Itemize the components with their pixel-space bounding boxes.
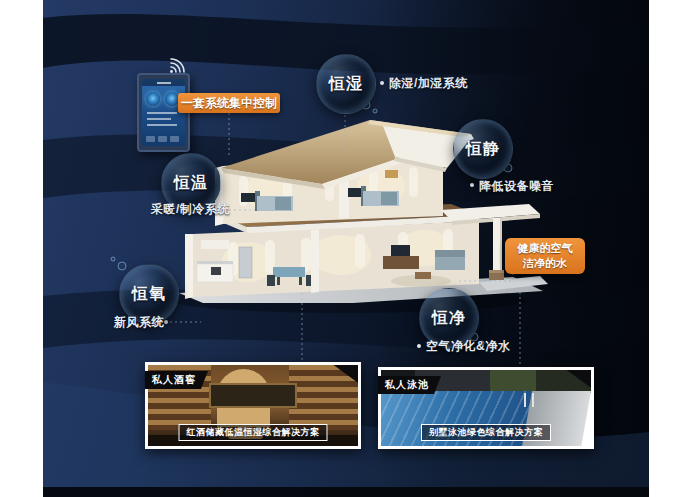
wine-caption: 红酒储藏低温恒湿综合解决方案: [179, 424, 328, 441]
poster-background: 一套系统集中控制 健康的空气 洁净的水 恒湿 恒静 恒温 恒氧 恒净 除湿/加湿…: [43, 0, 649, 497]
control-panel-header: [142, 79, 185, 86]
pool-tag: 私人泳池: [378, 376, 441, 394]
control-knob-icon: [165, 92, 179, 106]
poster-stage: 一套系统集中控制 健康的空气 洁净的水 恒湿 恒静 恒温 恒氧 恒净 除湿/加湿…: [0, 0, 700, 497]
central-control-callout: 一套系统集中控制: [178, 93, 280, 113]
note-noise-reduction: 降低设备噪音: [479, 178, 554, 195]
pool-ladder: [524, 393, 534, 407]
note-heating-cooling-system: 采暖/制冷系统: [151, 201, 230, 218]
note-air-water-purification: 空气净化&净水: [426, 338, 510, 355]
wine-picture-frame: [209, 383, 297, 408]
control-panel-buttons: [146, 136, 179, 142]
note-fresh-air-system: 新风系统: [114, 314, 164, 331]
wifi-icon: [167, 56, 187, 76]
bubble-constant-humidity: 恒湿: [316, 54, 376, 114]
control-knob-icon: [146, 92, 160, 106]
healthy-air-line: 健康的空气: [507, 241, 583, 256]
bubble-label: 恒净: [432, 308, 466, 329]
pool-caption: 别墅泳池绿色综合解决方案: [421, 424, 551, 441]
bubble-label: 恒氧: [132, 284, 166, 305]
wine-tag: 私人酒窖: [145, 371, 208, 389]
bubble-label: 恒湿: [329, 74, 363, 95]
note-dehumidify-system: 除湿/加湿系统: [389, 75, 468, 92]
bubble-label: 恒温: [174, 173, 208, 194]
photo-wine-cellar: 红酒储藏低温恒湿综合解决方案 私人酒窖: [145, 362, 361, 449]
clean-water-line: 洁净的水: [507, 256, 583, 271]
bubble-label: 恒静: [466, 139, 500, 160]
healthy-air-water-callout: 健康的空气 洁净的水: [505, 238, 585, 274]
photo-private-pool: 别墅泳池绿色综合解决方案 私人泳池: [378, 367, 594, 449]
bubble-constant-quiet: 恒静: [453, 119, 513, 179]
